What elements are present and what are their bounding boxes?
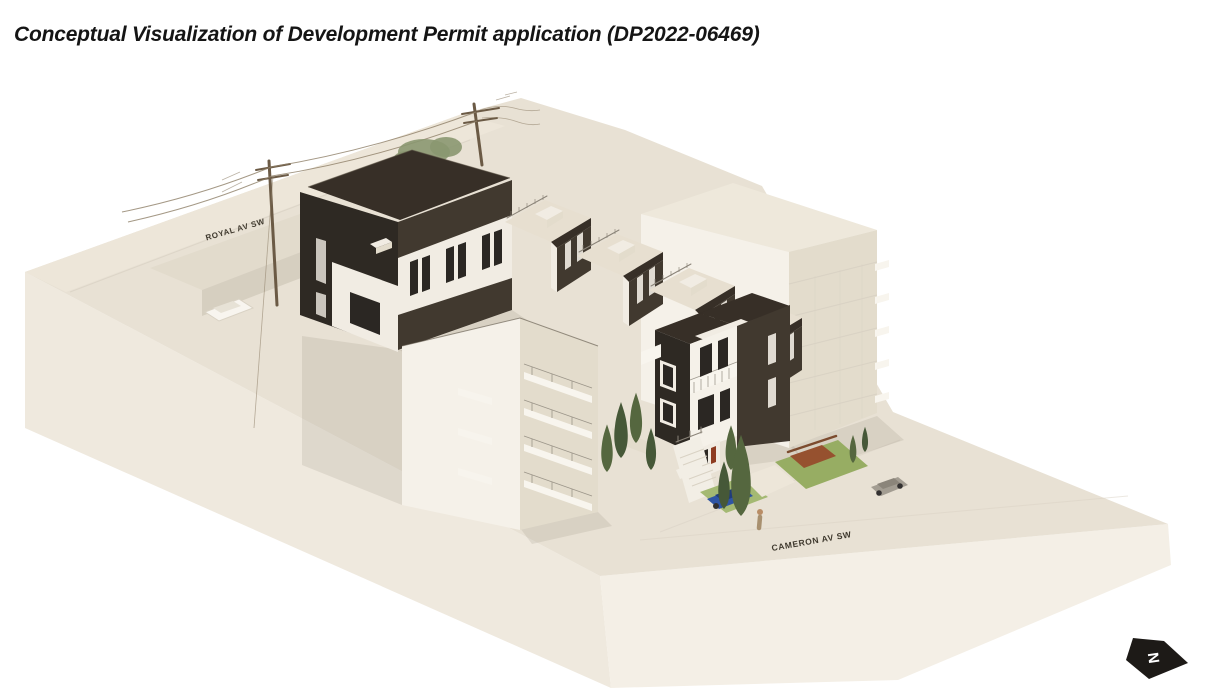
corner-right-facade (737, 305, 790, 447)
west-apartment-front-facade (402, 318, 520, 530)
neighbour-apartment-west (402, 318, 598, 530)
north-arrow-icon: N (1126, 638, 1188, 679)
east-apartment-balconies (875, 260, 889, 403)
site-rendering: ROYAL AV SW CAMERON AV SW N (0, 0, 1231, 691)
document-page: Conceptual Visualization of Development … (0, 0, 1231, 691)
laneway-left-windows (316, 238, 326, 318)
